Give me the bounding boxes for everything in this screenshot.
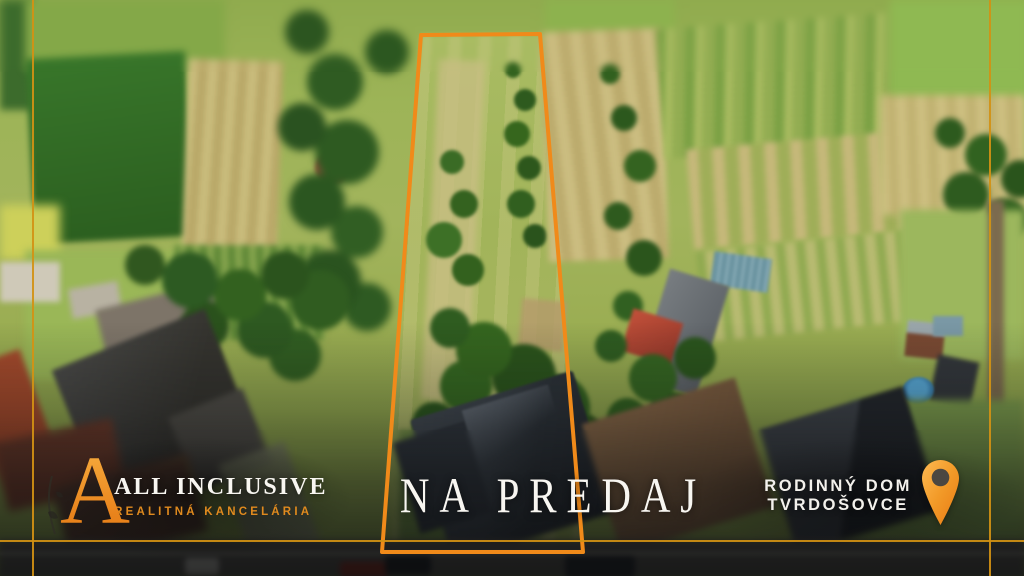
agency-name: ALL INCLUSIVE xyxy=(114,474,327,501)
tree-cluster xyxy=(440,150,464,174)
field-shape xyxy=(182,58,284,261)
vine-decoration-icon xyxy=(44,474,78,538)
property-type-label: RODINNÝ DOM xyxy=(764,477,912,496)
agency-logo: A ALL INCLUSIVE REALITNÁ KANCELÁRIA xyxy=(60,448,327,534)
agency-monogram: A xyxy=(60,448,130,534)
trellis-patch xyxy=(518,298,567,352)
tiltshift-top xyxy=(0,0,1024,72)
gray-shed-roof xyxy=(933,316,963,336)
gazebo-roof xyxy=(315,152,349,184)
tree-cluster xyxy=(935,118,965,148)
for-sale-title: NA PREDAJ xyxy=(400,466,706,524)
listing-flyer: A ALL INCLUSIVE REALITNÁ KANCELÁRIA NA P… xyxy=(0,0,1024,576)
property-info: RODINNÝ DOM TVRDOŠOVCE xyxy=(764,477,912,516)
agency-subtitle: REALITNÁ KANCELÁRIA xyxy=(114,506,327,518)
tree-cluster xyxy=(430,308,470,348)
tree-cluster xyxy=(595,330,627,362)
property-location-label: TVRDOŠOVCE xyxy=(764,496,912,515)
location-pin-icon xyxy=(921,459,960,526)
agency-logo-text: ALL INCLUSIVE REALITNÁ KANCELÁRIA xyxy=(114,448,327,518)
field-shape xyxy=(880,95,1024,215)
shed-roof xyxy=(0,262,60,302)
tree-cluster xyxy=(125,245,165,285)
